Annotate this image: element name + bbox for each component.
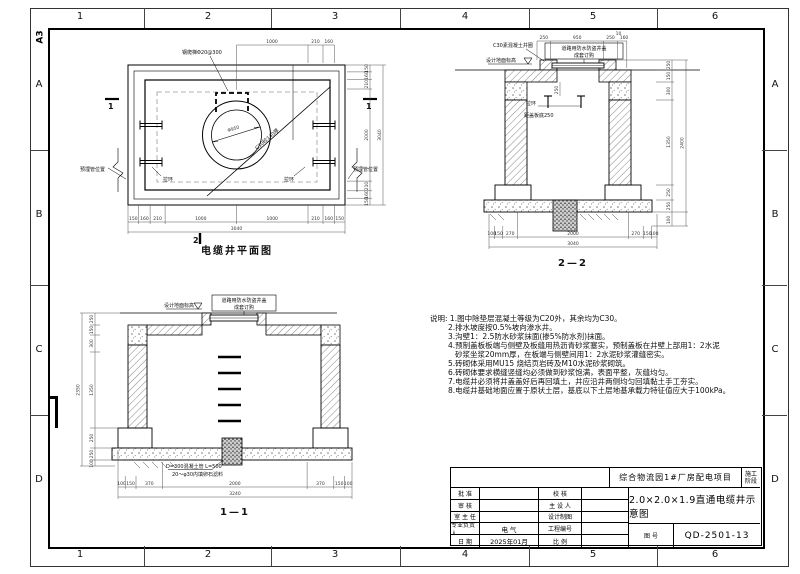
slab-offset-label: 距盖板底250	[524, 112, 554, 119]
note-line: 5.砖砌体采用MU15 烧结页岩砖及M10水泥砂浆砌筑。	[448, 359, 768, 368]
note-line: 砂浆坐浆20mm厚，在板端与侧壁间用1：2水泥砂浆灌缝密实。	[455, 350, 768, 359]
grid-col-4-bottom: 4	[455, 549, 475, 560]
dim: 300	[666, 87, 672, 96]
scale-value	[581, 535, 628, 547]
check-value	[581, 488, 628, 500]
embedded-pipe-label-left: 预埋管位置	[80, 166, 105, 173]
dim-total: 3240	[229, 491, 241, 497]
drawing-no-label: 图 号	[628, 523, 673, 547]
dim: 160	[324, 39, 333, 45]
grid-row-d-left: D	[29, 474, 49, 485]
grid-row-d-right: D	[765, 474, 785, 485]
dim: 1000	[195, 216, 207, 222]
dim: 160	[140, 216, 149, 222]
dim: 210	[311, 39, 320, 45]
dim: 250	[540, 35, 549, 41]
grid-col-4-top: 4	[455, 11, 475, 22]
section-1-1-drawing: 设计地面标高 道路用防水防盗井盖 成套订购 D=300混凝土管 L=500 20…	[60, 290, 400, 530]
ladder-opening-dashed	[216, 93, 248, 112]
note-line: 8.电缆井基础地面应置于原状土层，基底以下土层地基承载力特征值应大于100kPa…	[448, 386, 768, 395]
project-name: 综合物流园1#厂房配电项目	[609, 468, 741, 488]
pipe-label-line1: D=300混凝土管 L=500	[166, 463, 222, 470]
seepage-pit	[553, 200, 577, 231]
fold-mark-leg	[55, 396, 58, 428]
dim: 100	[666, 216, 672, 225]
notes-block: 说明: 1.图中除垫层混凝土等级为C20外，其余均为C30。 2.排水坡度按0.…	[430, 314, 768, 395]
dim: 100	[344, 481, 353, 487]
dim-total: 3040	[567, 241, 579, 247]
discipline-lead-label: 专业负责人	[451, 523, 479, 535]
dim: 270	[631, 231, 640, 237]
diagonal-label: C30砼140厚	[254, 127, 281, 152]
drawing-sheet: A3 1 2 3 4 5 6 1 2 3 4 5 6 A B C D A B C…	[0, 0, 800, 574]
dim: 150	[666, 72, 672, 81]
pipe-label-line2: 20～φ30内填卵石滤料	[172, 471, 223, 478]
dim: 250	[666, 202, 672, 211]
stage-line2: 阶段	[745, 478, 757, 485]
plan-title: 电缆井平面图	[201, 244, 273, 257]
dim: 160	[364, 71, 370, 80]
ground-label-22: 设计地面标高	[486, 57, 516, 64]
grid-row-b-right: B	[765, 209, 785, 220]
cover-label-line1-22: 道路用防水防盗井盖	[561, 45, 606, 52]
section-1-1-title: 1—1	[220, 507, 250, 518]
seepage-pipe	[222, 438, 242, 465]
dim: 210	[364, 182, 370, 191]
cable-rack-rungs	[218, 357, 241, 421]
grid-col-1-top: 1	[70, 11, 90, 22]
plan-view-drawing: 钢爬梯Φ20@300 Φ950 C30砼140厚 拉环 拉环 预埋管位置 预埋管…	[60, 30, 400, 265]
approve-value	[479, 488, 538, 500]
embedded-pipe-label-right: 预埋管位置	[353, 166, 378, 173]
pull-ring-label-left: 拉环	[163, 176, 173, 183]
dim: 1350	[666, 136, 672, 148]
dim: 100	[89, 459, 95, 468]
note-line: 3.沟壁1：2.5防水砂浆抹面(掺5%防水剂)抹面。	[448, 332, 768, 341]
designer-value	[581, 500, 628, 512]
notes-heading: 说明:	[430, 314, 448, 323]
section-2-2-title: 2—2	[558, 258, 588, 269]
grid-row-a-left: A	[29, 79, 49, 90]
dim-total: 2350	[76, 384, 82, 396]
dim: 150	[126, 481, 135, 487]
dim: 100	[117, 481, 126, 487]
note-line: 4.预制盖板板端与侧壁及板缝用热沥青砂浆塞实，预制盖板在井壁上部用1：2水泥	[448, 341, 768, 350]
chief-label: 室 主 任	[451, 512, 479, 524]
dim: 250	[89, 450, 95, 459]
pull-ring-label-22: 拉环	[526, 100, 536, 107]
dim: 250	[89, 315, 95, 324]
dim: 2000	[229, 481, 241, 487]
note-line: 2.排水坡度按0.5%坡向渗水井。	[448, 323, 768, 332]
circle-diameter-label: Φ950	[227, 125, 240, 134]
title-block: 综合物流园1#厂房配电项目 施工 阶段 批 准 审 核 室 主 任 专业负责人 …	[450, 467, 762, 546]
draft-label: 设计制图	[538, 512, 581, 524]
dim: 300	[89, 339, 95, 348]
stage-line1: 施工	[745, 471, 757, 478]
drawing-title: 2.0×2.0×1.9直通电缆井示意图	[628, 488, 760, 523]
grid-row-b-left: B	[29, 209, 49, 220]
dim-total: 3040	[231, 226, 243, 232]
dim: 210	[311, 216, 320, 222]
date-value: 2025年01月	[479, 535, 538, 547]
dim-total: 3040	[377, 129, 383, 141]
date-label: 日 期	[451, 535, 479, 547]
grid-col-1-bottom: 1	[70, 549, 90, 560]
grid-col-5-bottom: 5	[583, 549, 603, 560]
dim: 100	[650, 231, 659, 237]
dim: 150	[494, 231, 503, 237]
grid-col-5-top: 5	[583, 11, 603, 22]
check-label: 校 核	[538, 488, 581, 500]
dim: 250	[666, 61, 672, 70]
dim: 1350	[89, 384, 95, 396]
dim: 150	[335, 216, 344, 222]
collar-label: C30素混凝土井圈	[493, 42, 533, 49]
project-no-label: 工程编号	[538, 523, 581, 535]
sheet-size-label: A3	[36, 30, 46, 43]
dim: 150	[129, 216, 138, 222]
scale-label: 比 例	[538, 535, 581, 547]
grid-col-6-top: 6	[705, 11, 725, 22]
dim: 250	[89, 434, 95, 443]
review-label: 审 核	[451, 500, 479, 512]
grid-col-2-bottom: 2	[198, 549, 218, 560]
dim: 250	[666, 188, 672, 197]
dim: 150	[89, 326, 95, 335]
cover-label-line2-11: 成套订购	[234, 304, 254, 311]
dim: 370	[145, 481, 154, 487]
dim: 160	[324, 216, 333, 222]
grid-col-3-top: 3	[325, 11, 345, 22]
grid-col-2-top: 2	[198, 11, 218, 22]
drawing-no-value: QD-2501-13	[673, 523, 760, 547]
note-line: 6.砖砌体要求横缝竖缝均必须做到砂浆饱满，表面平整，灰缝均匀。	[448, 368, 768, 377]
ground-label-11: 设计地面标高	[164, 302, 194, 309]
dim: 2000	[364, 129, 370, 141]
grid-col-3-bottom: 3	[325, 549, 345, 560]
grid-row-c-left: C	[29, 344, 49, 355]
review-value	[479, 500, 538, 512]
note-line: 1.图中除垫层混凝土等级为C20外，其余均为C30。	[450, 314, 622, 323]
approve-label: 批 准	[451, 488, 479, 500]
cut-mark-1-left: 1	[108, 102, 114, 111]
plan-dimensions	[128, 45, 386, 234]
dim: 270	[506, 231, 515, 237]
grid-row-a-right: A	[765, 79, 785, 90]
stage-cell: 施工 阶段	[741, 468, 760, 488]
draft-value	[581, 512, 628, 524]
dim: 1000	[266, 39, 278, 45]
grid-row-c-right: C	[765, 344, 785, 355]
dim: 370	[316, 481, 325, 487]
dim: 1000	[266, 216, 278, 222]
project-no-value	[581, 523, 628, 535]
section-marker-2: 2	[193, 236, 199, 245]
designer-label: 主 设 人	[538, 500, 581, 512]
discipline-value: 电 气	[479, 523, 538, 535]
dim: 950	[573, 35, 582, 41]
cut-mark-1-right: 1	[366, 102, 372, 111]
dim: 250	[554, 86, 560, 95]
chief-value	[479, 512, 538, 524]
cover-label-line2-22: 成套订购	[574, 52, 594, 59]
note-line: 7.电缆井必须将井盖盖好后再回填土，井应沿井两侧均匀回填黏土手工夯实。	[448, 377, 768, 386]
dim: 210	[153, 216, 162, 222]
grid-col-6-bottom: 6	[705, 549, 725, 560]
dim: 160	[620, 35, 629, 41]
pull-ring-label-right: 拉环	[284, 176, 294, 183]
dim-total: 2400	[680, 137, 686, 149]
section-2-2-drawing: C30素混凝土井圈 设计地面标高 道路用防水防盗井盖 成套订购 拉环 距盖板底2…	[420, 30, 710, 275]
ladder-label: 钢爬梯Φ20@300	[182, 49, 222, 56]
dim: 150	[364, 197, 370, 206]
dim: 150	[335, 481, 344, 487]
dim: 210	[364, 80, 370, 89]
dim: 2000	[567, 231, 579, 237]
dim: 250	[606, 35, 615, 41]
cover-label-line1-11: 道路用防水防盗井盖	[221, 297, 266, 304]
